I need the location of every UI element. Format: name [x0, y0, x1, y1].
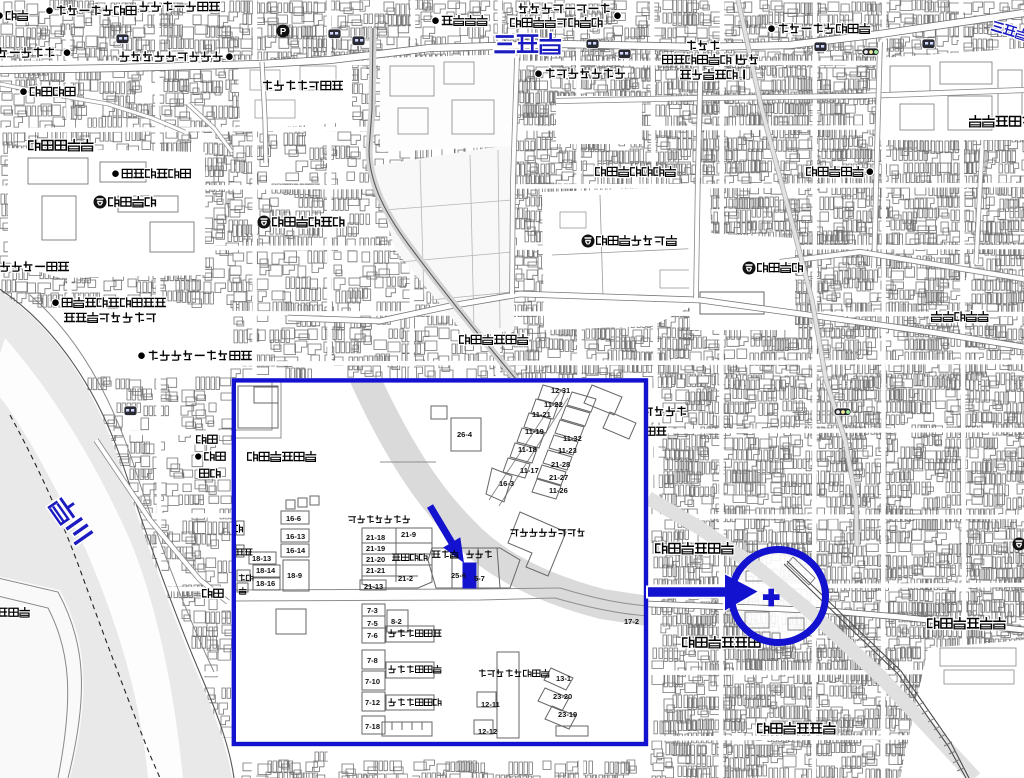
svg-text:11-17: 11-17: [520, 466, 539, 475]
svg-text:23-20: 23-20: [553, 692, 572, 701]
svg-text:11-32: 11-32: [563, 434, 582, 443]
svg-text:7-6: 7-6: [367, 631, 378, 640]
svg-text:21-2: 21-2: [398, 574, 413, 583]
svg-text:11-19: 11-19: [525, 427, 544, 436]
svg-text:7-3: 7-3: [367, 606, 378, 615]
svg-text:21-21: 21-21: [366, 566, 385, 575]
svg-text:P: P: [280, 26, 287, 37]
svg-text:18-16: 18-16: [256, 579, 275, 588]
svg-text:11-26: 11-26: [549, 486, 568, 495]
svg-text:21-28: 21-28: [551, 460, 570, 469]
svg-text:21-27: 21-27: [549, 473, 568, 482]
svg-text:12-31: 12-31: [551, 386, 570, 395]
svg-text:8-2: 8-2: [391, 617, 402, 626]
svg-text:7-5: 7-5: [367, 619, 378, 628]
svg-text:12-11: 12-11: [481, 700, 500, 709]
svg-text:16-14: 16-14: [286, 546, 306, 555]
svg-text:21-13: 21-13: [364, 582, 383, 591]
svg-text:18-13: 18-13: [252, 554, 271, 563]
svg-text:7-18: 7-18: [365, 722, 380, 731]
svg-text:21-20: 21-20: [366, 555, 385, 564]
svg-text:17-2: 17-2: [624, 617, 639, 626]
svg-text:13-1: 13-1: [556, 674, 571, 683]
svg-text:21-18: 21-18: [366, 533, 385, 542]
svg-text:18-9: 18-9: [287, 571, 302, 580]
svg-text:16-13: 16-13: [286, 532, 305, 541]
svg-text:11-22: 11-22: [544, 400, 563, 409]
svg-text:23-19: 23-19: [558, 710, 577, 719]
svg-text:25-6: 25-6: [451, 571, 466, 580]
svg-text:18-14: 18-14: [256, 566, 276, 575]
svg-text:11-21: 11-21: [532, 410, 551, 419]
svg-text:16-3: 16-3: [499, 479, 514, 488]
svg-text:21-9: 21-9: [401, 530, 416, 539]
svg-text:26-4: 26-4: [457, 430, 473, 439]
svg-text:7-10: 7-10: [365, 677, 380, 686]
svg-text:11-18: 11-18: [518, 445, 537, 454]
svg-text:16-6: 16-6: [286, 514, 301, 523]
svg-text:5-7: 5-7: [474, 574, 485, 583]
svg-text:11-23: 11-23: [558, 446, 577, 455]
svg-text:7-12: 7-12: [365, 698, 380, 707]
svg-text:12-12: 12-12: [478, 727, 497, 736]
svg-text:7-8: 7-8: [367, 656, 378, 665]
svg-text:21-19: 21-19: [366, 544, 385, 553]
